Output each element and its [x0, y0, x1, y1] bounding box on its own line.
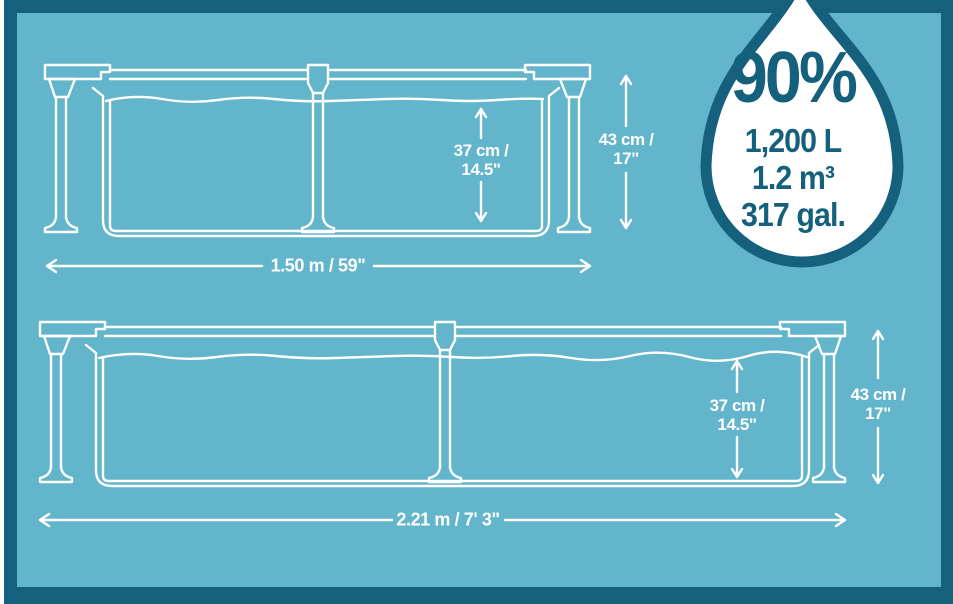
capacity-percent: 90%: [731, 37, 855, 119]
pool-small-frame-height-label: 43 cm / 17": [599, 130, 654, 168]
capacity-cubic-meters: 1.2 m³: [752, 159, 834, 197]
pool-small-length-label: 1.50 m / 59": [271, 257, 366, 276]
pool-large-water-depth-label: 37 cm / 14.5": [710, 396, 765, 434]
pool-small-frame-height-line1: 43 cm /: [599, 130, 654, 149]
pool-large-water-depth-line1: 37 cm /: [710, 396, 765, 415]
pool-large-frame-height-line1: 43 cm /: [851, 385, 906, 404]
pool-small-dimension-arrows: [47, 76, 631, 272]
pool-small-water-depth-line1: 37 cm /: [454, 141, 509, 160]
pool-small-water-depth-label: 37 cm / 14.5": [454, 141, 509, 179]
capacity-liters: 1,200 L: [745, 122, 842, 160]
pool-large-frame-height-label: 43 cm / 17": [851, 385, 906, 423]
pool-large-length-label: 2.21 m / 7' 3": [396, 511, 499, 530]
pool-small-water-depth-line2: 14.5": [454, 160, 509, 179]
capacity-gallons: 317 gal.: [741, 196, 845, 234]
pool-infographic: 90% 1,200 L 1.2 m³ 317 gal. 1.50 m / 59"…: [0, 0, 953, 604]
pool-small-frame-height-line2: 17": [599, 149, 654, 168]
pool-large-water-depth-line2: 14.5": [710, 415, 765, 434]
pool-large-frame-height-line2: 17": [851, 404, 906, 423]
